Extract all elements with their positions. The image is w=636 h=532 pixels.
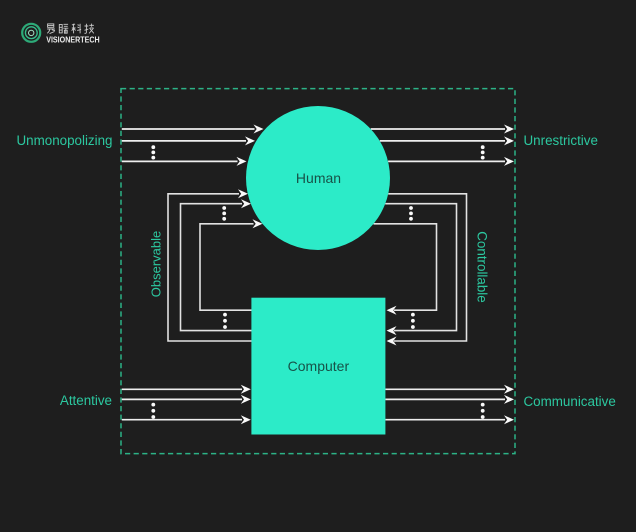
- svg-text:Computer: Computer: [288, 358, 350, 374]
- svg-text:Communicative: Communicative: [524, 394, 616, 409]
- svg-text:Controllable: Controllable: [474, 231, 489, 302]
- svg-text:Unmonopolizing: Unmonopolizing: [16, 133, 112, 148]
- svg-text:Human: Human: [296, 170, 341, 186]
- svg-text:VISIONERTECH: VISIONERTECH: [46, 35, 99, 45]
- svg-text:Unrestrictive: Unrestrictive: [524, 133, 598, 148]
- svg-text:Attentive: Attentive: [60, 393, 112, 408]
- svg-text:Observable: Observable: [149, 231, 164, 297]
